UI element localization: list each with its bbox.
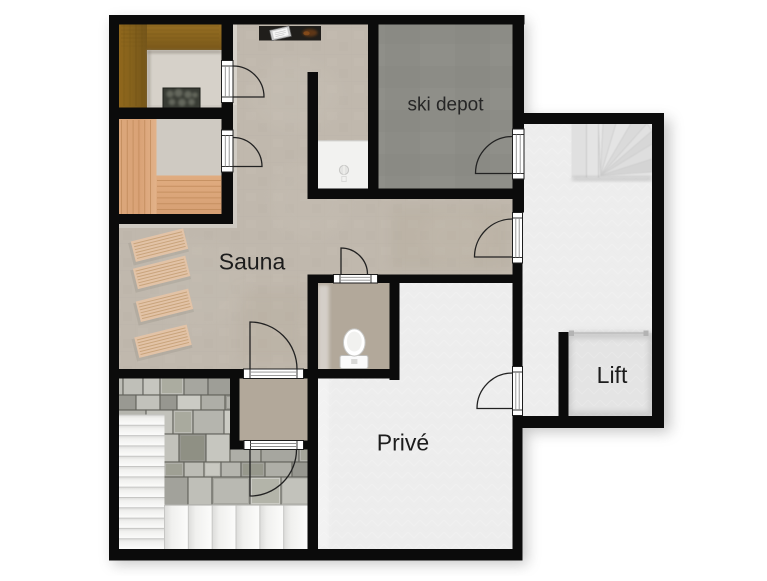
svg-text:Lift: Lift	[597, 362, 628, 388]
svg-text:Sauna: Sauna	[219, 249, 286, 275]
svg-text:ski depot: ski depot	[407, 95, 484, 116]
svg-text:Privé: Privé	[377, 430, 429, 456]
